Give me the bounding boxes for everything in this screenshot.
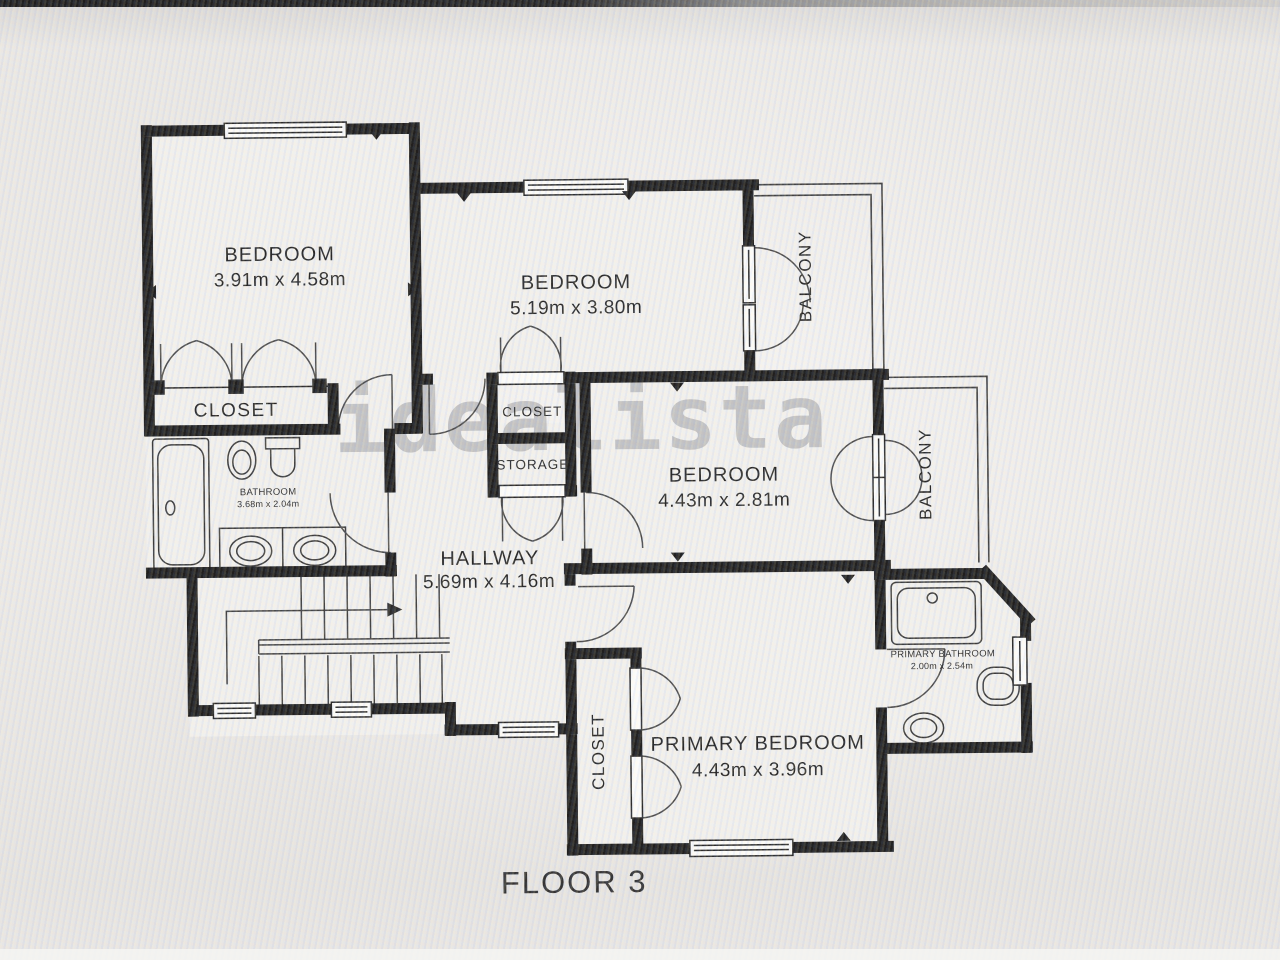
- primary-suite-floor: [566, 561, 889, 853]
- bedroom3-dims: 4.43m x 2.81m: [658, 489, 790, 511]
- corridor-window: [499, 722, 559, 738]
- closet-small-label: CLOSET: [502, 404, 562, 420]
- floor-number-label: FLOOR 3: [501, 864, 648, 901]
- hallway-dims: 5.69m x 4.16m: [423, 571, 555, 593]
- floor-plan-svg: idealista: [0, 0, 1280, 967]
- balcony-top-label: BALCONY: [795, 230, 815, 322]
- storage-label: STORAGE: [496, 457, 569, 473]
- bedroom3-name: BEDROOM: [669, 464, 780, 487]
- primary-closet-opening-casing-bottom: [631, 756, 643, 818]
- primary-bedroom-name: PRIMARY BEDROOM: [651, 732, 866, 756]
- primary-bathroom-dims: 2.00m x 2.54m: [911, 661, 973, 672]
- screen-photo-background: idealista: [0, 0, 1280, 960]
- bedroom1-dims: 3.91m x 4.58m: [214, 269, 346, 291]
- primary-bathroom-name: PRIMARY BATHROOM: [890, 648, 995, 660]
- bedroom2-dims: 5.19m x 3.80m: [510, 297, 642, 319]
- stairs-window-left: [213, 703, 255, 718]
- bedroom2-name: BEDROOM: [521, 271, 632, 294]
- hallway-name: HALLWAY: [440, 547, 539, 570]
- bathroom-name: BATHROOM: [240, 487, 297, 499]
- primary-bedroom-dims: 4.43m x 3.96m: [692, 759, 824, 781]
- closet-small-opening-casing: [498, 372, 564, 385]
- bedroom2-balcony-window: [743, 246, 756, 303]
- bedroom2-window: [524, 179, 628, 195]
- bathroom-dims: 3.68m x 2.04m: [237, 499, 299, 510]
- floor-plan: idealista: [0, 0, 1280, 967]
- bedroom3-french-door-frame: [873, 434, 886, 520]
- closet-primary-label: CLOSET: [588, 713, 608, 790]
- screen-bottom-edge: [0, 949, 1280, 960]
- closet-main-label: CLOSET: [194, 400, 279, 422]
- primary-closet-opening-casing-top: [630, 668, 642, 730]
- bedroom1-window: [224, 122, 346, 138]
- primary-bedroom-window: [690, 839, 793, 856]
- bedroom2-balcony-door-frame: [743, 305, 755, 351]
- bedroom1-name: BEDROOM: [224, 243, 335, 266]
- balcony-right-outer-line: [884, 376, 989, 563]
- primary-bathroom-window: [1013, 637, 1028, 685]
- storage-opening-casing: [499, 485, 565, 498]
- balcony-right-label: BALCONY: [915, 428, 935, 520]
- stairs-window-right: [331, 702, 371, 717]
